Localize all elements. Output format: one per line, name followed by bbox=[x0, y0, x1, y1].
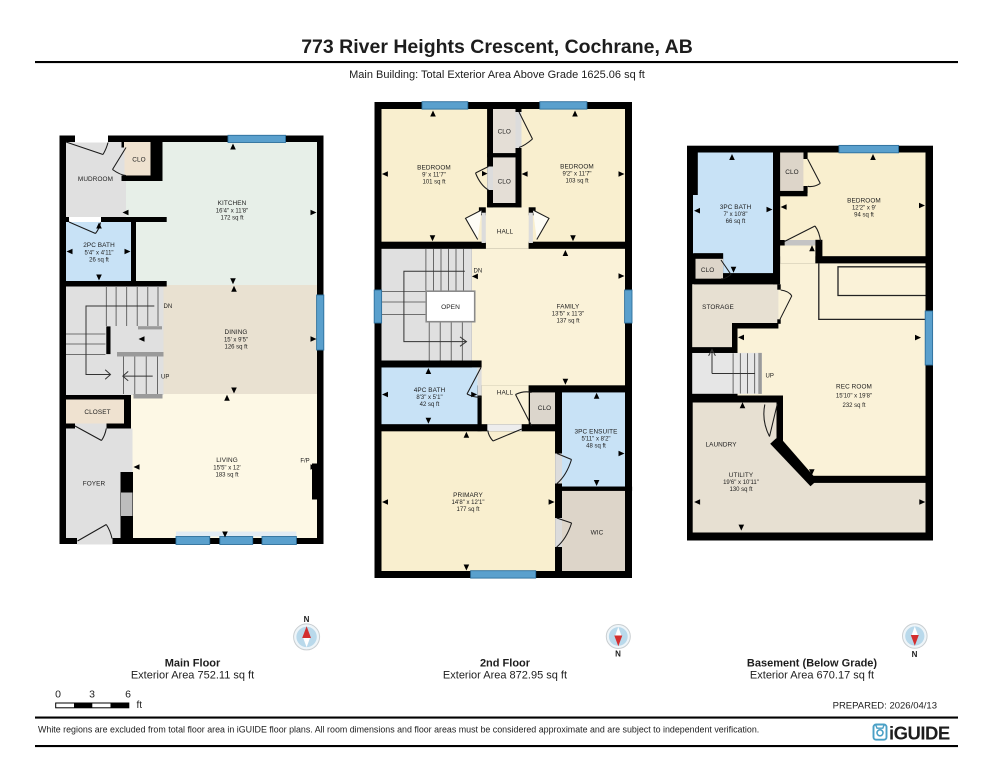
svg-text:Exterior Area 872.95 sq ft: Exterior Area 872.95 sq ft bbox=[443, 670, 567, 682]
svg-text:Exterior Area 752.11 sq ft: Exterior Area 752.11 sq ft bbox=[131, 670, 254, 682]
svg-text:2nd Floor: 2nd Floor bbox=[480, 658, 531, 670]
svg-text:CLO: CLO bbox=[498, 128, 511, 135]
svg-text:UTILITY: UTILITY bbox=[729, 472, 754, 479]
svg-text:MUDROOM: MUDROOM bbox=[78, 176, 113, 183]
svg-text:BEDROOM: BEDROOM bbox=[417, 164, 451, 171]
svg-text:19'6" x 10'11": 19'6" x 10'11" bbox=[723, 480, 759, 486]
svg-text:iGUIDE: iGUIDE bbox=[889, 723, 950, 744]
svg-text:94 sq ft: 94 sq ft bbox=[854, 213, 874, 219]
svg-text:Basement (Below Grade): Basement (Below Grade) bbox=[747, 658, 878, 670]
svg-text:LAUNDRY: LAUNDRY bbox=[705, 441, 737, 448]
svg-text:3PC BATH: 3PC BATH bbox=[720, 204, 752, 211]
svg-text:773 River Heights Crescent, Co: 773 River Heights Crescent, Cochrane, AB bbox=[301, 36, 693, 58]
svg-text:103 sq ft: 103 sq ft bbox=[565, 179, 588, 185]
svg-text:13'5" x 11'3": 13'5" x 11'3" bbox=[552, 312, 584, 318]
svg-text:F/P: F/P bbox=[300, 459, 309, 465]
svg-text:DINING: DINING bbox=[225, 329, 248, 336]
svg-text:ft: ft bbox=[137, 700, 143, 711]
svg-text:137 sq ft: 137 sq ft bbox=[556, 319, 579, 325]
svg-text:HALL: HALL bbox=[497, 389, 514, 396]
svg-text:15'5" x 12': 15'5" x 12' bbox=[213, 466, 240, 472]
svg-text:3: 3 bbox=[89, 689, 95, 701]
svg-text:3PC ENSUITE: 3PC ENSUITE bbox=[574, 428, 617, 435]
svg-text:CLO: CLO bbox=[538, 405, 551, 412]
svg-text:BEDROOM: BEDROOM bbox=[847, 197, 881, 204]
svg-text:183 sq ft: 183 sq ft bbox=[215, 473, 238, 479]
svg-text:15'10" x 19'8": 15'10" x 19'8" bbox=[836, 394, 872, 400]
svg-text:BEDROOM: BEDROOM bbox=[560, 163, 594, 170]
svg-text:4PC BATH: 4PC BATH bbox=[414, 387, 446, 394]
svg-text:HALL: HALL bbox=[497, 228, 514, 235]
svg-text:DN: DN bbox=[474, 269, 483, 275]
svg-text:UP: UP bbox=[161, 375, 169, 381]
svg-text:0: 0 bbox=[55, 689, 61, 701]
svg-text:Main Floor: Main Floor bbox=[165, 658, 221, 670]
svg-text:5'11" x 8'2": 5'11" x 8'2" bbox=[581, 437, 610, 443]
svg-text:126 sq ft: 126 sq ft bbox=[224, 345, 247, 351]
svg-text:FAMILY: FAMILY bbox=[557, 303, 580, 310]
svg-text:42 sq ft: 42 sq ft bbox=[420, 402, 440, 408]
svg-text:177 sq ft: 177 sq ft bbox=[456, 507, 479, 513]
svg-text:232 sq ft: 232 sq ft bbox=[842, 403, 865, 409]
svg-text:2PC BATH: 2PC BATH bbox=[83, 242, 115, 249]
svg-text:FOYER: FOYER bbox=[83, 481, 106, 488]
svg-text:Exterior Area 670.17 sq ft: Exterior Area 670.17 sq ft bbox=[750, 670, 874, 682]
svg-text:KITCHEN: KITCHEN bbox=[218, 200, 247, 207]
svg-text:Main Building: Total Exterior: Main Building: Total Exterior Area Above… bbox=[349, 69, 645, 81]
svg-text:12'2" x 9': 12'2" x 9' bbox=[852, 206, 876, 212]
svg-text:7' x 10'8": 7' x 10'8" bbox=[723, 212, 747, 218]
svg-text:CLO: CLO bbox=[132, 157, 145, 164]
svg-text:STORAGE: STORAGE bbox=[702, 304, 734, 311]
svg-text:8'3" x 5'1": 8'3" x 5'1" bbox=[416, 395, 442, 401]
svg-text:5'4" x 4'11": 5'4" x 4'11" bbox=[84, 250, 113, 256]
svg-text:OPEN: OPEN bbox=[441, 304, 460, 311]
svg-text:CLOSET: CLOSET bbox=[84, 409, 110, 416]
svg-text:UP: UP bbox=[766, 373, 774, 379]
svg-text:White regions are excluded fro: White regions are excluded from total fl… bbox=[38, 725, 759, 735]
svg-text:PRIMARY: PRIMARY bbox=[453, 492, 483, 499]
svg-text:14'8" x 12'1": 14'8" x 12'1" bbox=[452, 500, 485, 506]
svg-text:9' x 11'7": 9' x 11'7" bbox=[422, 173, 446, 179]
svg-text:172 sq ft: 172 sq ft bbox=[220, 216, 243, 222]
svg-text:DN: DN bbox=[164, 304, 173, 310]
svg-text:CLO: CLO bbox=[498, 178, 511, 185]
svg-text:LIVING: LIVING bbox=[216, 457, 238, 464]
svg-text:N: N bbox=[615, 650, 621, 659]
svg-text:WIC: WIC bbox=[591, 529, 604, 536]
svg-text:15' x 9'5": 15' x 9'5" bbox=[224, 338, 248, 344]
svg-text:130 sq ft: 130 sq ft bbox=[729, 487, 752, 493]
svg-text:48 sq ft: 48 sq ft bbox=[586, 444, 606, 450]
svg-text:REC ROOM: REC ROOM bbox=[836, 383, 872, 390]
svg-text:CLO: CLO bbox=[701, 267, 714, 274]
svg-text:16'4" x 11'8": 16'4" x 11'8" bbox=[216, 209, 248, 215]
svg-text:N: N bbox=[912, 650, 918, 659]
svg-text:6: 6 bbox=[125, 689, 131, 701]
svg-text:N: N bbox=[304, 615, 310, 624]
svg-text:26 sq ft: 26 sq ft bbox=[89, 257, 109, 263]
svg-text:CLO: CLO bbox=[785, 169, 798, 176]
svg-text:101 sq ft: 101 sq ft bbox=[422, 180, 445, 186]
svg-text:PREPARED: 2026/04/13: PREPARED: 2026/04/13 bbox=[833, 701, 937, 712]
svg-text:9'2" x 11'7": 9'2" x 11'7" bbox=[562, 172, 591, 178]
svg-text:66 sq ft: 66 sq ft bbox=[726, 219, 746, 225]
